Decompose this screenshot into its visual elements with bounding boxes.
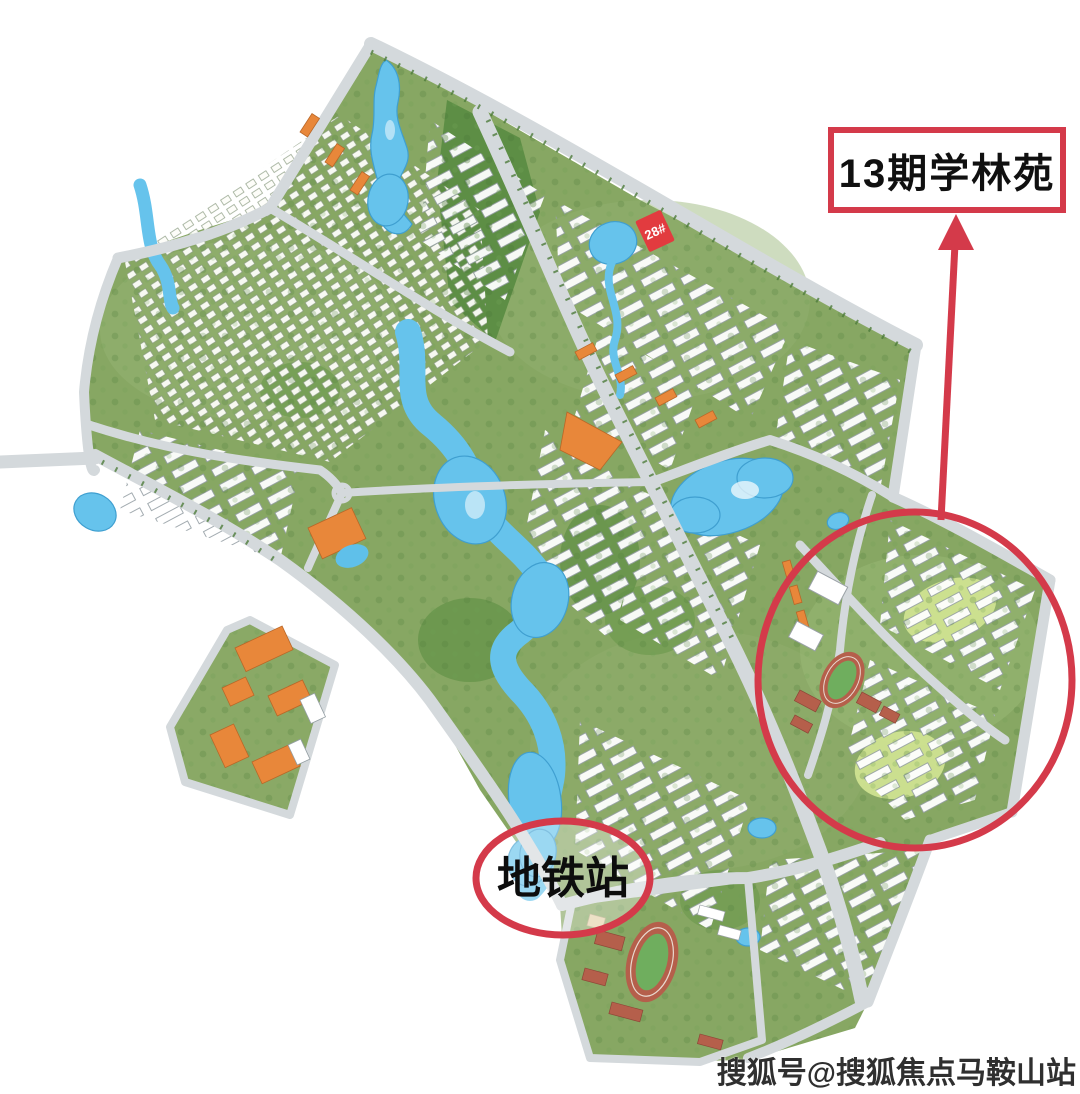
pointer-arrow [938,214,974,520]
metro-station-label: 地铁站 [497,854,629,903]
phase-label-box: 13期学林苑 [828,127,1066,213]
metro-station-callout: 地铁站 [476,821,650,935]
screenshot-canvas: 28# 地铁站 13期学林苑 搜狐号@搜狐焦点马鞍山站 [0,0,1080,1094]
phase-label-text: 13期学林苑 [839,141,1056,199]
watermark-text: 搜狐号@搜狐焦点马鞍山站 [717,1048,1076,1092]
